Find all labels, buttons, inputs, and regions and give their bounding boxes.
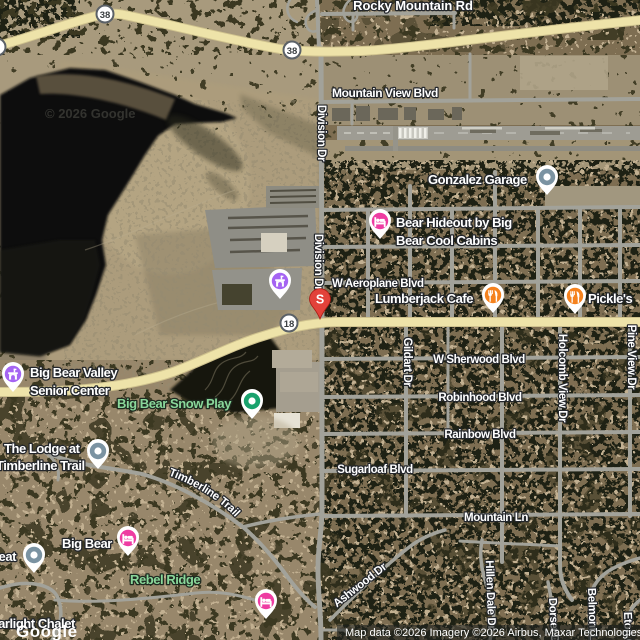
svg-text:Big Bear Snow Play: Big Bear Snow Play — [117, 396, 232, 411]
svg-text:Bear Hideout by Big: Bear Hideout by Big — [396, 215, 512, 230]
svg-text:Gonzalez Garage: Gonzalez Garage — [428, 172, 527, 187]
svg-text:The Lodge at: The Lodge at — [4, 441, 81, 456]
svg-text:Division Dr: Division Dr — [315, 105, 327, 162]
svg-text:Big Bear: Big Bear — [62, 536, 112, 551]
svg-text:38: 38 — [100, 10, 111, 21]
svg-text:Google: Google — [16, 622, 78, 640]
svg-text:Gildart Dr: Gildart Dr — [401, 337, 413, 387]
svg-text:Rocky Mountain Rd: Rocky Mountain Rd — [353, 0, 473, 13]
svg-text:Sugarloaf Blvd: Sugarloaf Blvd — [337, 464, 413, 476]
svg-text:Hillen Dale Dr: Hillen Dale Dr — [483, 560, 497, 630]
svg-text:W Aeroplane Blvd: W Aeroplane Blvd — [332, 278, 424, 290]
svg-text:Mountain Ln: Mountain Ln — [464, 512, 528, 524]
svg-text:Holcomb View Dr: Holcomb View Dr — [556, 334, 568, 423]
svg-text:Senior Center: Senior Center — [30, 383, 110, 398]
svg-text:18: 18 — [284, 319, 295, 330]
svg-text:Mountain View Blvd: Mountain View Blvd — [332, 86, 438, 100]
svg-text:Rainbow Blvd: Rainbow Blvd — [444, 429, 516, 441]
svg-text:Pickle's: Pickle's — [588, 291, 633, 306]
svg-text:© 2026 Google: © 2026 Google — [45, 106, 136, 121]
svg-text:Big Bear Valley: Big Bear Valley — [30, 365, 118, 380]
svg-text:38: 38 — [287, 46, 298, 57]
svg-text:S: S — [316, 293, 324, 307]
svg-text:Robinhood Blvd: Robinhood Blvd — [438, 392, 522, 404]
svg-text:Bear Cool Cabins: Bear Cool Cabins — [396, 233, 497, 248]
svg-text:Rebel Ridge: Rebel Ridge — [130, 572, 200, 587]
svg-text:Division Dr: Division Dr — [312, 234, 324, 291]
svg-text:Lumberjack Cafe: Lumberjack Cafe — [375, 291, 473, 306]
svg-text:Timberline Trail: Timberline Trail — [0, 458, 85, 473]
svg-text:Map data ©2026 Imagery ©2026 A: Map data ©2026 Imagery ©2026 Airbus, Max… — [345, 627, 640, 639]
svg-text:Pine View Dr: Pine View Dr — [625, 325, 637, 391]
svg-text:eat: eat — [0, 549, 17, 564]
svg-text:W Sherwood Blvd: W Sherwood Blvd — [433, 354, 525, 366]
